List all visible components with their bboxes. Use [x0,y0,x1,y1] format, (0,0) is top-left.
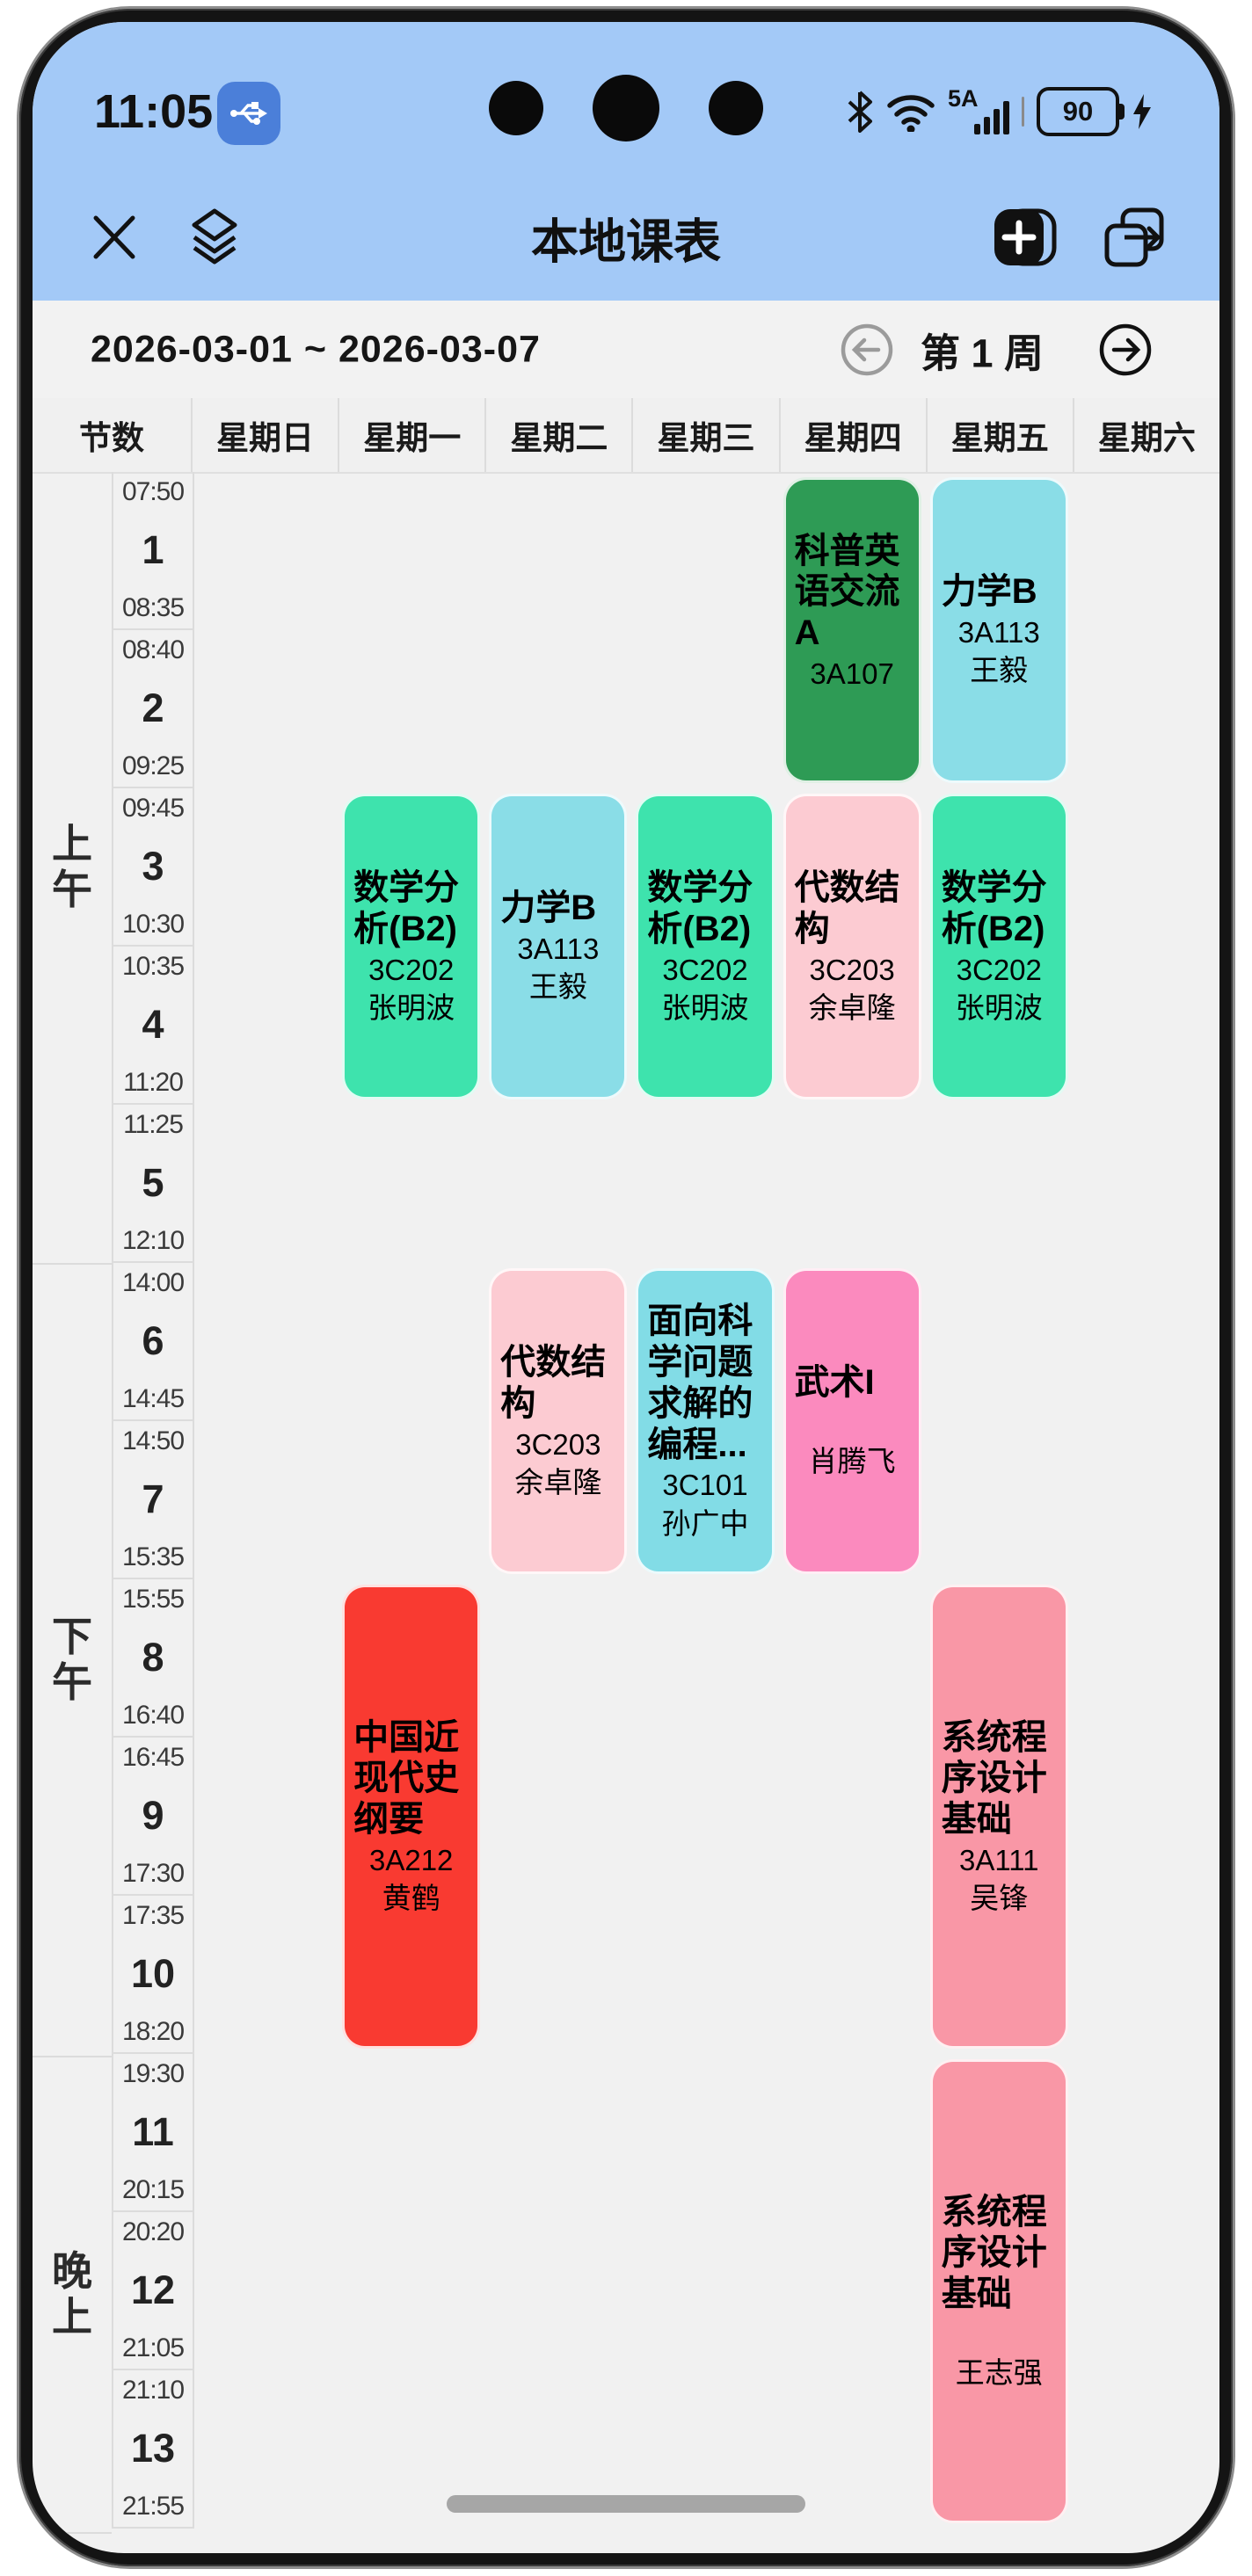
course-block[interactable]: 数学分析(B2)3C202张明波 [930,794,1068,1099]
course-room: 3C202 [353,952,469,988]
day-header-row: 节数 星期日星期一星期二星期三星期四星期五星期六 [33,398,1219,474]
course-room: 3A212 [353,1842,469,1878]
course-block[interactable]: 系统程序设计基础王志强 [930,2059,1068,2523]
week-label: 第 1 周 [921,321,1044,378]
course-block[interactable]: 科普英语交流A3A107 [783,477,921,783]
day-header: 星期六 [1074,398,1219,472]
course-teacher: 余卓隆 [500,1464,615,1500]
day-header: 星期二 [486,398,633,472]
add-schedule-icon[interactable] [993,204,1058,271]
course-name: 数学分析(B2) [353,867,469,950]
status-clock: 11:05 [94,68,213,156]
day-header: 星期三 [633,398,780,472]
nav-bar: 本地课表 [33,173,1219,301]
usb-icon [217,82,280,145]
corner-header: 节数 [33,398,193,472]
course-room: 3C203 [500,1426,615,1462]
course-name: 数学分析(B2) [942,867,1057,950]
home-indicator[interactable] [447,2495,805,2513]
course-teacher: 王志强 [942,2355,1057,2391]
course-block[interactable]: 系统程序设计基础3A111吴锋 [930,1585,1068,2049]
course-block[interactable]: 面向科学问题求解的编程...3C101孙广中 [636,1268,774,1574]
course-name: 科普英语交流A [795,531,910,654]
charging-bolt-icon [1132,93,1153,130]
course-teacher: 余卓隆 [795,990,910,1026]
course-room [942,2317,1057,2353]
wifi-icon [886,91,935,132]
course-block[interactable]: 代数结构3C203余卓隆 [489,1268,627,1574]
phone-frame: 11:05 [19,9,1233,2566]
course-block[interactable]: 数学分析(B2)3C202张明波 [342,794,480,1099]
course-name: 中国近现代史纲要 [353,1717,469,1840]
day-header: 星期四 [781,398,928,472]
day-header: 星期五 [928,398,1074,472]
camera-lens-left [489,81,543,135]
day-header: 星期日 [193,398,339,472]
course-room: 3C202 [647,952,762,988]
course-name: 系统程序设计基础 [942,1717,1057,1840]
day-header: 星期一 [339,398,486,472]
course-block[interactable]: 武术I肖腾飞 [783,1268,921,1574]
course-room: 3C202 [942,952,1057,988]
course-block[interactable]: 力学B3A113王毅 [930,477,1068,783]
week-bar: 2026-03-01 ~ 2026-03-07 第 1 周 [33,301,1219,400]
course-teacher: 肖腾飞 [795,1443,910,1479]
course-teacher: 王毅 [500,969,615,1005]
course-teacher: 王毅 [942,652,1057,688]
course-teacher: 黄鹤 [353,1880,469,1916]
course-teacher: 张明波 [647,990,762,1026]
battery-icon: 90 [1037,87,1119,136]
course-name: 代数结构 [795,867,910,950]
course-room [795,1405,910,1441]
switch-schedule-icon[interactable] [1103,207,1165,268]
top-blue-area: 11:05 [33,22,1219,301]
status-icons: 5A 90 [846,68,1153,156]
course-name: 力学B [942,571,1057,613]
course-name: 数学分析(B2) [647,867,762,950]
course-block[interactable]: 力学B3A113王毅 [489,794,627,1099]
course-teacher [795,693,910,729]
course-name: 系统程序设计基础 [942,2192,1057,2315]
battery-level: 90 [1063,96,1093,127]
course-room: 3C101 [647,1467,762,1503]
prev-week-icon[interactable] [840,323,894,377]
timetable-grid: 上午下午晚上 07:50108:3508:40209:2509:45310:30… [33,472,1219,2529]
bluetooth-icon [846,91,874,133]
course-block[interactable]: 数学分析(B2)3C202张明波 [636,794,774,1099]
course-block[interactable]: 中国近现代史纲要3A212黄鹤 [342,1585,480,2049]
course-block[interactable]: 代数结构3C203余卓隆 [783,794,921,1099]
signal-bars-icon: 5A [948,87,1009,136]
course-name: 面向科学问题求解的编程... [647,1301,762,1465]
course-room: 3A113 [500,931,615,967]
course-layer: 科普英语交流A3A107力学B3A113王毅数学分析(B2)3C202张明波力学… [33,472,1219,2529]
course-teacher: 张明波 [942,990,1057,1026]
date-range: 2026-03-01 ~ 2026-03-07 [91,328,541,371]
course-room: 3A113 [942,614,1057,650]
course-name: 武术I [795,1362,910,1404]
course-teacher: 孙广中 [647,1506,762,1542]
course-room: 3C203 [795,952,910,988]
course-name: 代数结构 [500,1342,615,1425]
course-teacher: 吴锋 [942,1880,1057,1916]
course-room: 3A107 [795,656,910,692]
course-teacher: 张明波 [353,990,469,1026]
camera-lens-right [709,81,763,135]
course-room: 3A111 [942,1842,1057,1878]
status-divider [1022,97,1024,127]
status-bar: 11:05 [33,68,1219,156]
phone-screen: 11:05 [33,22,1219,2553]
camera-lens-center [593,75,659,141]
course-name: 力学B [500,888,615,929]
next-week-icon[interactable] [1098,323,1153,377]
camera-cutout [489,75,763,141]
